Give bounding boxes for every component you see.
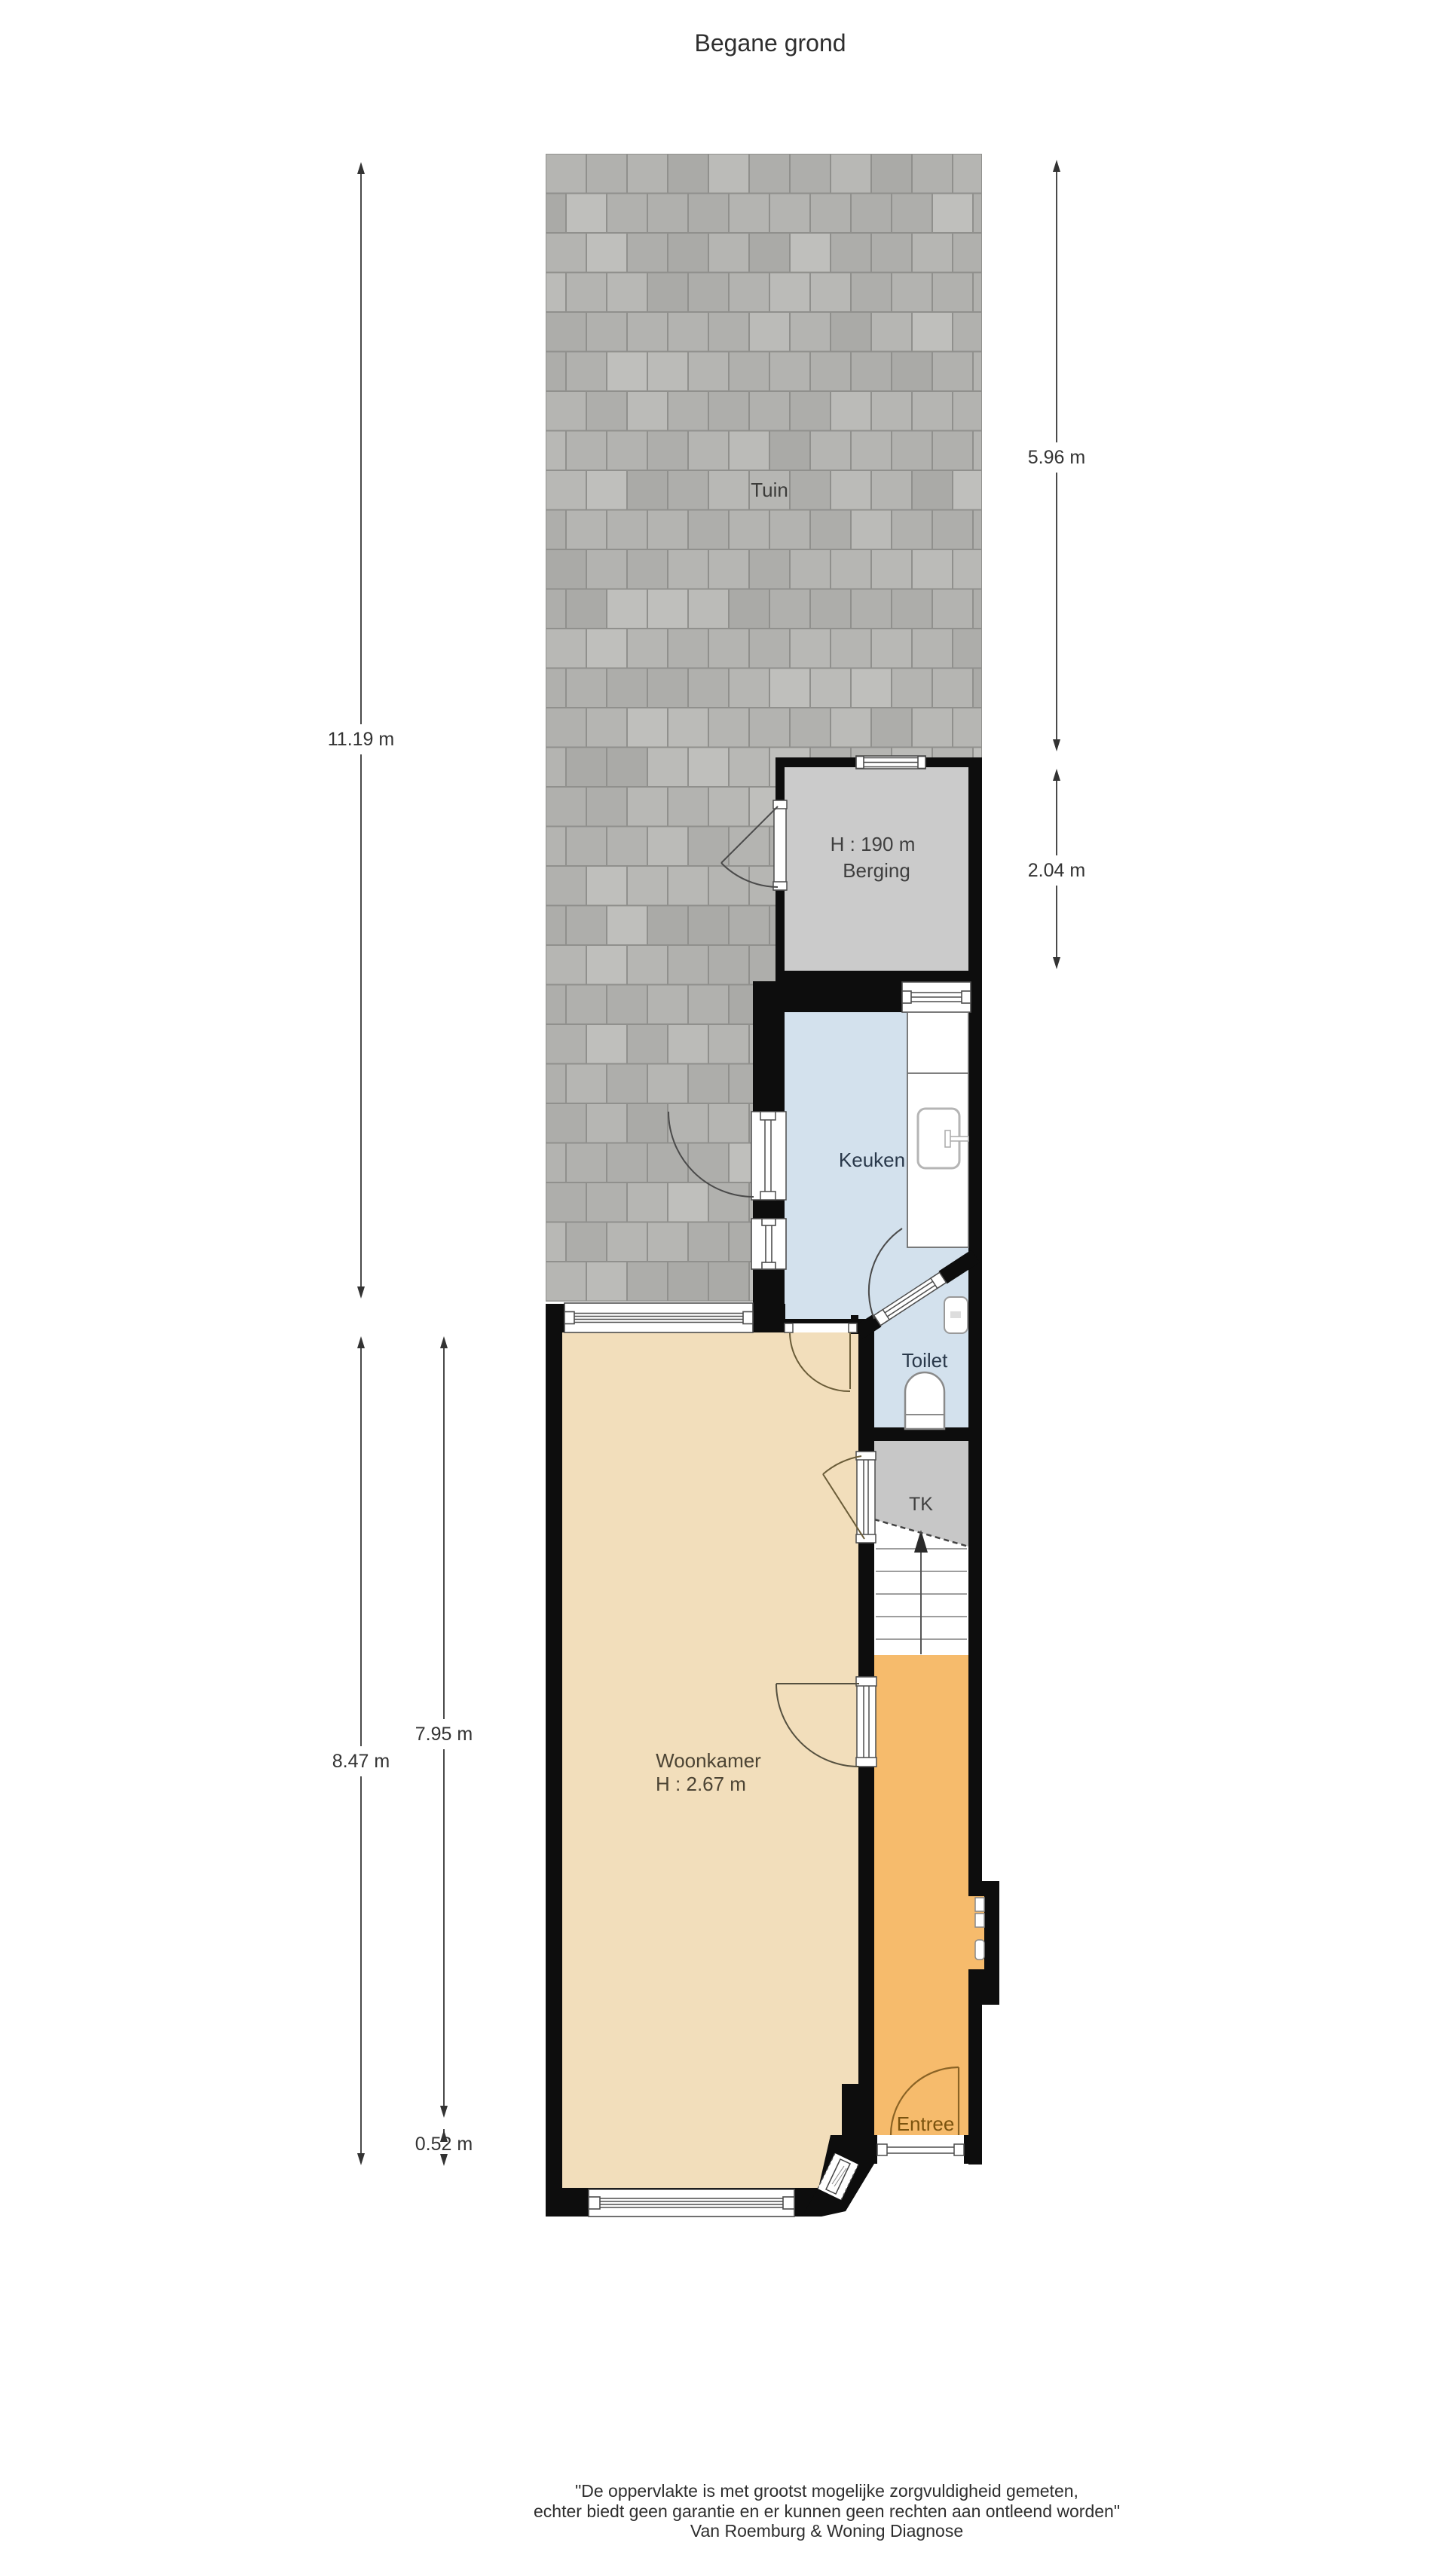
svg-text:Toilet: Toilet [902,1349,948,1372]
svg-text:"De oppervlakte is met grootst: "De oppervlakte is met grootst mogelijke… [575,2481,1078,2501]
svg-text:8.47 m: 8.47 m [332,1751,390,1772]
svg-text:TK: TK [909,1494,933,1515]
svg-text:11.19 m: 11.19 m [328,729,394,750]
svg-text:H : 2.67 m: H : 2.67 m [656,1773,746,1795]
svg-text:Berging: Berging [843,859,910,882]
svg-text:5.96 m: 5.96 m [1028,447,1085,468]
svg-text:H : 190 m: H : 190 m [831,833,916,855]
svg-text:7.95 m: 7.95 m [415,1724,473,1745]
svg-text:Begane grond: Begane grond [694,29,846,57]
svg-text:Entree: Entree [897,2113,955,2135]
svg-text:0.52 m: 0.52 m [415,2134,473,2155]
svg-text:echter biedt geen garantie en: echter biedt geen garantie en er kunnen … [534,2501,1120,2521]
svg-text:Keuken: Keuken [839,1149,905,1171]
svg-text:Van Roemburg & Woning Diagnose: Van Roemburg & Woning Diagnose [690,2521,963,2541]
svg-text:Tuin: Tuin [751,479,788,501]
svg-text:Woonkamer: Woonkamer [656,1749,761,1772]
svg-text:2.04 m: 2.04 m [1028,860,1085,881]
